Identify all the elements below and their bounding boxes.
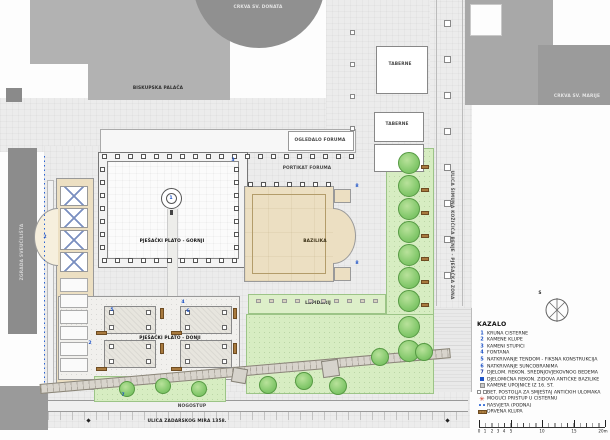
building-small-west xyxy=(6,88,22,102)
lapidarium-fragment-icon xyxy=(282,299,287,303)
label-church-st-mary: CRKVA SV. MARIJE xyxy=(554,93,600,98)
label-east-street: ULICA ŠIMUNA KOŽIČIĆA BENJE - PJEŠAČKA Z… xyxy=(449,170,454,299)
legend-marker: ✳ xyxy=(477,397,487,401)
sidewalk-band xyxy=(0,400,468,412)
label-forum-portico: PORTIKAT FORUMA xyxy=(283,165,332,170)
canopy-post xyxy=(185,325,190,330)
compass-north-label: S xyxy=(538,290,541,295)
legend-label: DJELOM. REKON. SREDNJOVJEKOVNOG BEDEMA xyxy=(487,370,598,375)
lapidarium-fragment-icon xyxy=(269,299,274,303)
legend-label: KAMENE KLUPE xyxy=(487,337,523,342)
scale-label: 20m xyxy=(598,429,607,434)
legend-item: 7DJELOM. REKON. SREDNJOVJEKOVNOG BEDEMA xyxy=(477,369,610,376)
canopy-post xyxy=(109,359,114,364)
legend-marker xyxy=(477,377,487,382)
taberne-box-b xyxy=(374,112,424,142)
cistern-access-mark xyxy=(170,210,173,215)
legend-label: DJELOMIČNA REKON. ZIDOVA ANTIČKE BAZILIK… xyxy=(487,376,599,381)
canopy-post xyxy=(146,344,151,349)
courtyard-notch xyxy=(470,4,502,36)
column-icon xyxy=(100,245,105,250)
legend-label: NATKRIVANJE TENDOM - FIKSNA KONSTRUKCIJA xyxy=(487,357,597,362)
label-taberne-a: TABERNE xyxy=(388,61,411,66)
wooden-bench-icon xyxy=(96,367,107,371)
column-icon xyxy=(261,182,266,187)
street-stone-icon xyxy=(444,20,451,27)
legend-label: KAMENE UPOJNICE IZ 16. ST. xyxy=(487,383,554,388)
column-icon xyxy=(141,154,146,159)
plan-marker: 4 xyxy=(181,299,184,304)
blue-dots-icon xyxy=(479,404,485,406)
column-icon xyxy=(336,154,341,159)
column-icon xyxy=(154,154,159,159)
column-icon xyxy=(100,206,105,211)
column-icon xyxy=(167,154,172,159)
column-icon xyxy=(100,180,105,185)
wooden-bench-icon xyxy=(160,343,164,354)
label-sidewalk: NOGOSTUP xyxy=(178,403,206,408)
legend-label: RASVJETA (PODNA) xyxy=(487,403,531,408)
plan-marker: 3 xyxy=(231,157,234,162)
street-stone-icon xyxy=(350,126,355,131)
column-icon xyxy=(128,154,133,159)
canopy-post xyxy=(146,325,151,330)
tree-icon xyxy=(155,378,171,394)
street-stone-icon xyxy=(444,92,451,99)
red-star-icon: ✳ xyxy=(479,397,484,401)
column-icon xyxy=(234,180,239,185)
column-icon xyxy=(234,193,239,198)
column-icon xyxy=(287,182,292,187)
label-west-building: ZGRADA SVEUČILIŠTA xyxy=(19,224,24,281)
label-south-street: ULICA ZADARSKOG MIRA 1358. xyxy=(147,418,226,423)
label-basilica: BAZILIKA xyxy=(303,238,327,243)
legend-marker: 7 xyxy=(477,369,487,376)
canopy-post xyxy=(222,344,227,349)
street-stone-icon xyxy=(350,94,355,99)
lapidarium-fragment-icon xyxy=(334,299,339,303)
column-icon xyxy=(100,167,105,172)
column-icon xyxy=(180,258,185,263)
lapidarium-fragment-icon xyxy=(308,299,313,303)
column-icon xyxy=(141,258,146,263)
tree-icon xyxy=(259,376,277,394)
lapidarium-fragment-icon xyxy=(347,299,352,303)
column-icon xyxy=(234,232,239,237)
tree-icon xyxy=(398,316,420,338)
tree-icon xyxy=(398,290,420,312)
tende-bay-icon xyxy=(60,252,88,272)
column-icon xyxy=(219,154,224,159)
wooden-bench-icon xyxy=(421,257,429,261)
wooden-bench-icon xyxy=(421,165,429,169)
column-icon xyxy=(271,154,276,159)
legend-marker xyxy=(477,383,487,388)
canopy-post xyxy=(146,310,151,315)
street-tick-band xyxy=(0,412,466,420)
column-icon xyxy=(284,154,289,159)
canopy-post xyxy=(185,359,190,364)
legend-marker xyxy=(477,404,487,406)
label-taberne-b: TABERNE xyxy=(385,121,408,126)
scale-tick xyxy=(511,420,512,427)
legend-label: MOGUĆI PRISTUP U CISTERNU xyxy=(487,396,557,401)
scale-tick xyxy=(574,420,575,427)
legend-label: BET. POSTOLJA ZA SMJEŠTAJ ANTIČKIH ULOMA… xyxy=(487,389,600,394)
tree-icon xyxy=(329,377,347,395)
label-upper-plaza: PJEŠAČKI PLATO - GORNJI xyxy=(140,238,205,243)
wooden-bench-icon xyxy=(171,331,182,335)
wooden-bench-icon xyxy=(171,367,182,371)
legend-title: KAZALO xyxy=(477,320,603,328)
wooden-bench-icon xyxy=(233,308,237,319)
column-icon xyxy=(219,258,224,263)
street-stone-icon xyxy=(350,62,355,67)
tree-icon xyxy=(398,152,420,174)
column-icon xyxy=(300,182,305,187)
column-icon xyxy=(100,193,105,198)
east-street-curb-west xyxy=(436,0,437,306)
wood-bar-icon xyxy=(478,410,487,414)
legend-label: KRUNA CISTERNE xyxy=(487,331,528,336)
street-stone-icon xyxy=(444,236,451,243)
axis-path xyxy=(167,209,178,297)
column-icon xyxy=(115,154,120,159)
column-icon xyxy=(128,258,133,263)
scale-bar: 012345101520m xyxy=(479,419,607,431)
arcade-room xyxy=(60,278,88,292)
tree-icon xyxy=(398,221,420,243)
scale-label: 0 xyxy=(478,429,481,434)
column-icon xyxy=(234,219,239,224)
canopy-post xyxy=(185,344,190,349)
legend-item: BET. POSTOLJA ZA SMJEŠTAJ ANTIČKIH ULOMA… xyxy=(477,389,610,396)
plan-marker: 5 xyxy=(110,307,113,312)
label-church-st-donatus: CRKVA SV. DONATA xyxy=(234,4,283,9)
plan-marker: 2 xyxy=(88,340,91,345)
legend-label: FONTANA xyxy=(487,350,509,355)
street-stone-icon xyxy=(444,128,451,135)
plan-marker: 8 xyxy=(355,260,358,265)
legend-item: DRVENA KLUPA xyxy=(477,409,610,416)
stone-well-b xyxy=(321,359,340,378)
column-icon xyxy=(180,154,185,159)
scale-label: 3 xyxy=(497,429,500,434)
scale-label: 1 xyxy=(484,429,487,434)
wooden-bench-icon xyxy=(421,303,429,307)
street-stone-icon xyxy=(444,56,451,63)
legend-panel: KAZALO 1KRUNA CISTERNE2KAMENE KLUPE3KAME… xyxy=(477,320,610,415)
tree-icon xyxy=(398,267,420,289)
label-bishops-palace: BISKUPSKA PALAČA xyxy=(133,85,183,90)
scale-label: 2 xyxy=(490,429,493,434)
basilica-nave-outline xyxy=(252,194,326,274)
wooden-bench-icon xyxy=(421,211,429,215)
column-icon xyxy=(234,245,239,250)
tree-icon xyxy=(371,348,389,366)
tende-bay-icon xyxy=(60,208,88,228)
tree-icon xyxy=(398,244,420,266)
legend-label: KAMENI STUPIĆI xyxy=(487,344,525,349)
canopy-post xyxy=(146,359,151,364)
stone-well-a xyxy=(231,367,248,384)
tende-bay-icon xyxy=(60,230,88,250)
tree-icon xyxy=(191,381,207,397)
scale-tick xyxy=(542,420,543,427)
tree-icon xyxy=(295,372,313,390)
column-icon xyxy=(102,258,107,263)
column-icon xyxy=(248,182,253,187)
street-stone-icon xyxy=(444,272,451,279)
column-icon xyxy=(167,258,172,263)
tende-bay-icon xyxy=(60,186,88,206)
scale-label: 10 xyxy=(539,429,544,434)
scale-tick xyxy=(479,420,480,427)
column-icon xyxy=(234,167,239,172)
plan-marker: 1 xyxy=(169,195,172,200)
scale-label: 15 xyxy=(571,429,576,434)
arcade-room xyxy=(60,342,88,356)
num-icon: 2 xyxy=(480,337,483,343)
legend-label: DRVENA KLUPA xyxy=(487,409,523,414)
column-icon xyxy=(245,154,250,159)
num-icon: 3 xyxy=(480,344,483,350)
label-forum-mirror: OGLEDALO FORUMA xyxy=(295,137,346,142)
column-icon xyxy=(323,154,328,159)
gray-square-icon xyxy=(480,383,485,388)
column-icon xyxy=(310,154,315,159)
tree-icon xyxy=(415,343,433,361)
wooden-bench-icon xyxy=(96,331,107,335)
column-icon xyxy=(349,154,354,159)
column-icon xyxy=(297,154,302,159)
num-icon: 1 xyxy=(480,330,483,336)
street-stone-icon xyxy=(444,200,451,207)
column-icon xyxy=(206,258,211,263)
canopy-post xyxy=(222,310,227,315)
column-icon xyxy=(102,154,107,159)
legend-label: NATKRIVANJE SUNCOBRANIMA xyxy=(487,363,558,368)
column-icon xyxy=(274,182,279,187)
column-icon xyxy=(154,258,159,263)
plan-marker: 7 xyxy=(121,392,124,397)
column-icon xyxy=(206,154,211,159)
legend-rows: 1KRUNA CISTERNE2KAMENE KLUPE3KAMENI STUP… xyxy=(477,330,610,415)
scale-label: 5 xyxy=(509,429,512,434)
num-bold-icon: 7 xyxy=(480,370,483,376)
canopy-post xyxy=(222,359,227,364)
wooden-bench-icon xyxy=(160,308,164,319)
legend-marker xyxy=(477,410,487,414)
legend-marker xyxy=(477,390,487,394)
plan-marker: 8 xyxy=(355,183,358,188)
lapidarium-fragment-icon xyxy=(373,299,378,303)
arcade-room xyxy=(60,358,88,372)
square-icon xyxy=(480,377,485,382)
legend-item: DJELOMIČNA REKON. ZIDOVA ANTIČKE BAZILIK… xyxy=(477,376,610,383)
street-stone-icon xyxy=(350,30,355,35)
wooden-bench-icon xyxy=(421,234,429,238)
canopy-post xyxy=(109,344,114,349)
column-icon xyxy=(100,232,105,237)
canopy-post xyxy=(222,325,227,330)
arcade-room xyxy=(60,326,88,340)
scale-label: 4 xyxy=(503,429,506,434)
wooden-bench-icon xyxy=(421,280,429,284)
num-icon: 6 xyxy=(480,363,483,369)
site-plan-drawing: CRKVA SV. DONATA BISKUPSKA PALAČA CRKVA … xyxy=(0,0,610,440)
tree-icon xyxy=(398,175,420,197)
column-icon xyxy=(232,258,237,263)
column-icon xyxy=(313,182,318,187)
basilica-corner-room-north xyxy=(334,189,351,203)
column-icon xyxy=(326,182,331,187)
column-icon xyxy=(193,258,198,263)
arcade-room xyxy=(60,294,88,308)
floor-lighting-line xyxy=(44,156,45,388)
arcade-room xyxy=(60,310,88,324)
num-icon: 5 xyxy=(480,357,483,363)
tree-icon xyxy=(398,198,420,220)
num-icon: 4 xyxy=(480,350,483,356)
taberne-box-a xyxy=(376,46,428,94)
building-bishops-palace xyxy=(88,64,230,100)
gray-pair-icon xyxy=(477,390,487,394)
column-icon xyxy=(258,154,263,159)
street-stone-icon xyxy=(444,164,451,171)
plan-marker: 2 xyxy=(43,234,46,239)
canopy-post xyxy=(109,325,114,330)
column-icon xyxy=(193,154,198,159)
column-icon xyxy=(100,219,105,224)
column-icon xyxy=(115,258,120,263)
column-icon xyxy=(234,206,239,211)
wooden-bench-icon xyxy=(233,343,237,354)
lapidarium-fragment-icon xyxy=(256,299,261,303)
east-street-curb-east xyxy=(462,0,463,306)
lapidarium-fragment-icon xyxy=(295,299,300,303)
scale-tick xyxy=(605,420,606,427)
wooden-bench-icon xyxy=(421,188,429,192)
basilica-corner-room-south xyxy=(334,267,351,281)
legend-item: 5NATKRIVANJE TENDOM - FIKSNA KONSTRUKCIJ… xyxy=(477,356,610,363)
plan-marker: 6 xyxy=(186,308,189,313)
lapidarium-fragment-icon xyxy=(360,299,365,303)
lapidarium-fragment-icon xyxy=(321,299,326,303)
